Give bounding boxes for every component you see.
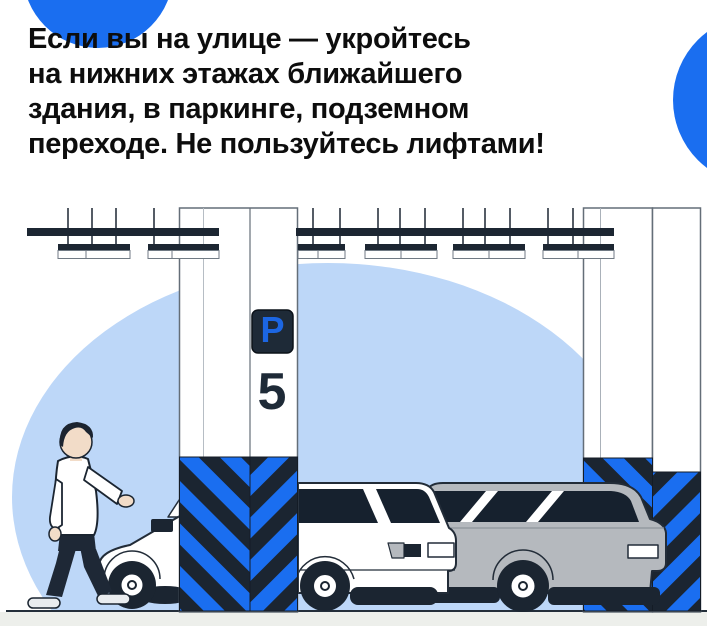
wheel: [497, 560, 549, 612]
hand: [118, 495, 134, 507]
hazard-chevron: [250, 457, 298, 611]
taillight: [628, 545, 658, 558]
license-plate: [428, 543, 454, 557]
level-number: 5: [258, 363, 287, 421]
parking-sign-icon: P: [252, 309, 293, 353]
shoe: [97, 594, 130, 604]
parking-garage-illustration: P 5: [0, 195, 707, 626]
wheel: [300, 561, 350, 611]
ceiling-pipes: [27, 208, 614, 259]
hand: [49, 527, 61, 541]
shoe: [28, 598, 60, 608]
floor-strip: [0, 612, 707, 626]
parking-sign-letter: P: [260, 309, 284, 350]
headline-text: Если вы на улице — укройтесь на нижних э…: [28, 22, 668, 162]
decor-circle-right: [673, 15, 707, 185]
side-mirror: [151, 519, 173, 532]
safety-infographic-card: Если вы на улице — укройтесь на нижних э…: [0, 0, 707, 626]
car-windows: [417, 491, 639, 522]
hazard-chevron: [180, 457, 251, 611]
central-pillar: P 5: [180, 208, 298, 612]
